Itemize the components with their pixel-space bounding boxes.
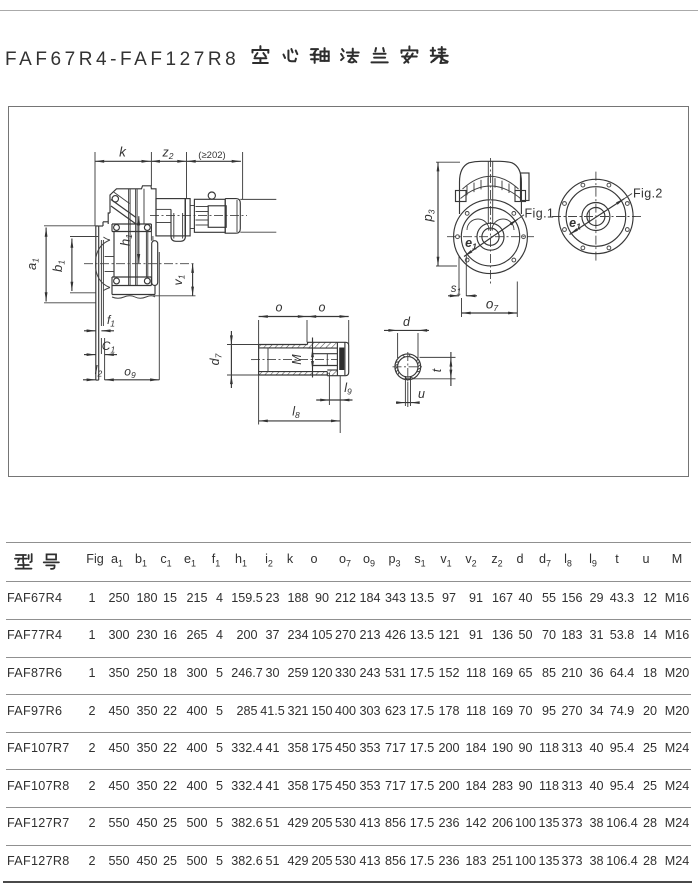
svg-text:Fig.2: Fig.2 [633, 187, 663, 201]
svg-text:a1: a1 [24, 258, 41, 270]
svg-text:o: o [276, 301, 283, 315]
svg-text:l8: l8 [292, 405, 300, 421]
svg-text:(≥202): (≥202) [198, 150, 225, 161]
svg-text:f1: f1 [107, 313, 115, 329]
svg-text:e1: e1 [569, 216, 581, 232]
svg-text:t: t [430, 368, 444, 372]
svg-text:v1: v1 [171, 274, 187, 285]
svg-text:s1: s1 [451, 283, 462, 297]
svg-text:l9: l9 [344, 381, 352, 397]
svg-text:b1: b1 [50, 260, 67, 272]
svg-text:d: d [403, 315, 411, 329]
svg-text:p3: p3 [420, 209, 437, 222]
svg-text:o7: o7 [486, 297, 499, 314]
svg-text:M: M [290, 354, 304, 365]
svg-text:e1: e1 [465, 236, 477, 252]
svg-text:o: o [319, 301, 326, 315]
svg-text:z2: z2 [162, 146, 174, 162]
svg-text:k: k [119, 145, 127, 160]
svg-text:Fig.1: Fig.1 [525, 207, 555, 221]
svg-text:C1: C1 [102, 339, 116, 355]
svg-text:h1: h1 [118, 234, 135, 246]
svg-text:u: u [418, 387, 425, 401]
svg-text:o9: o9 [124, 365, 136, 381]
svg-text:d7: d7 [208, 353, 224, 365]
